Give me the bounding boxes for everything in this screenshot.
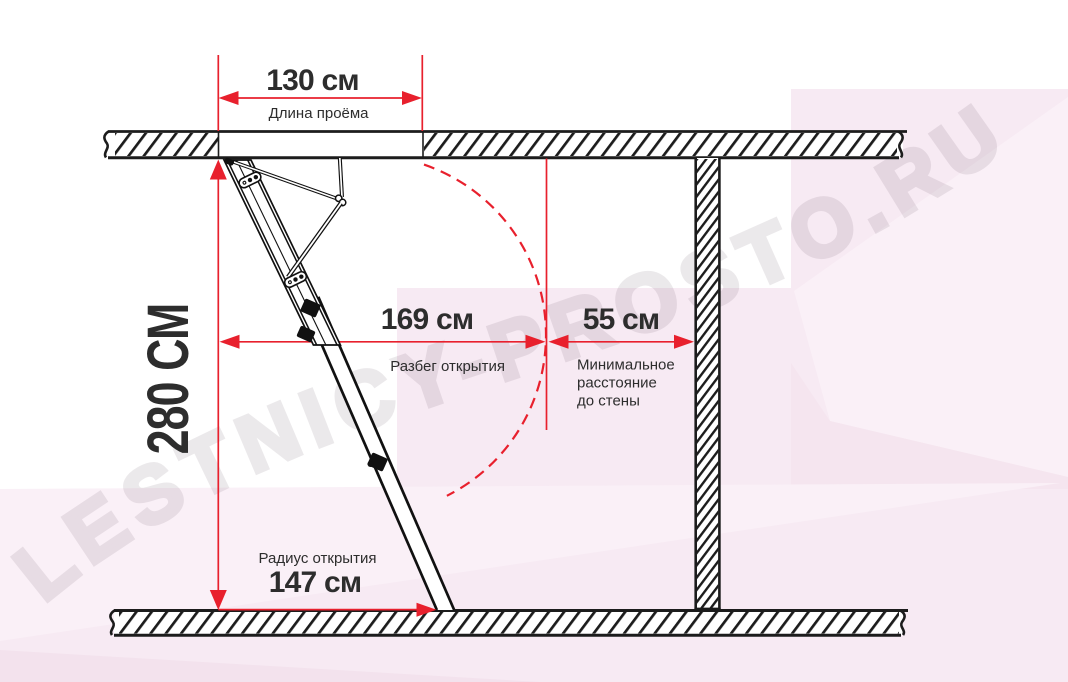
svg-text:55 см: 55 см bbox=[583, 303, 660, 336]
svg-text:Разбег открытия: Разбег открытия bbox=[390, 358, 505, 375]
svg-text:Радиус открытия: Радиус открытия bbox=[259, 550, 377, 567]
svg-text:до стены: до стены bbox=[577, 393, 640, 410]
svg-text:расстояние: расстояние bbox=[577, 375, 657, 392]
svg-text:130 см: 130 см bbox=[266, 64, 358, 97]
svg-text:169 см: 169 см bbox=[381, 303, 473, 336]
svg-text:Минимальное: Минимальное bbox=[577, 357, 675, 374]
svg-text:147 см: 147 см bbox=[269, 566, 361, 599]
svg-text:280 СМ: 280 СМ bbox=[136, 304, 201, 455]
svg-text:Длина проёма: Длина проёма bbox=[269, 105, 370, 122]
